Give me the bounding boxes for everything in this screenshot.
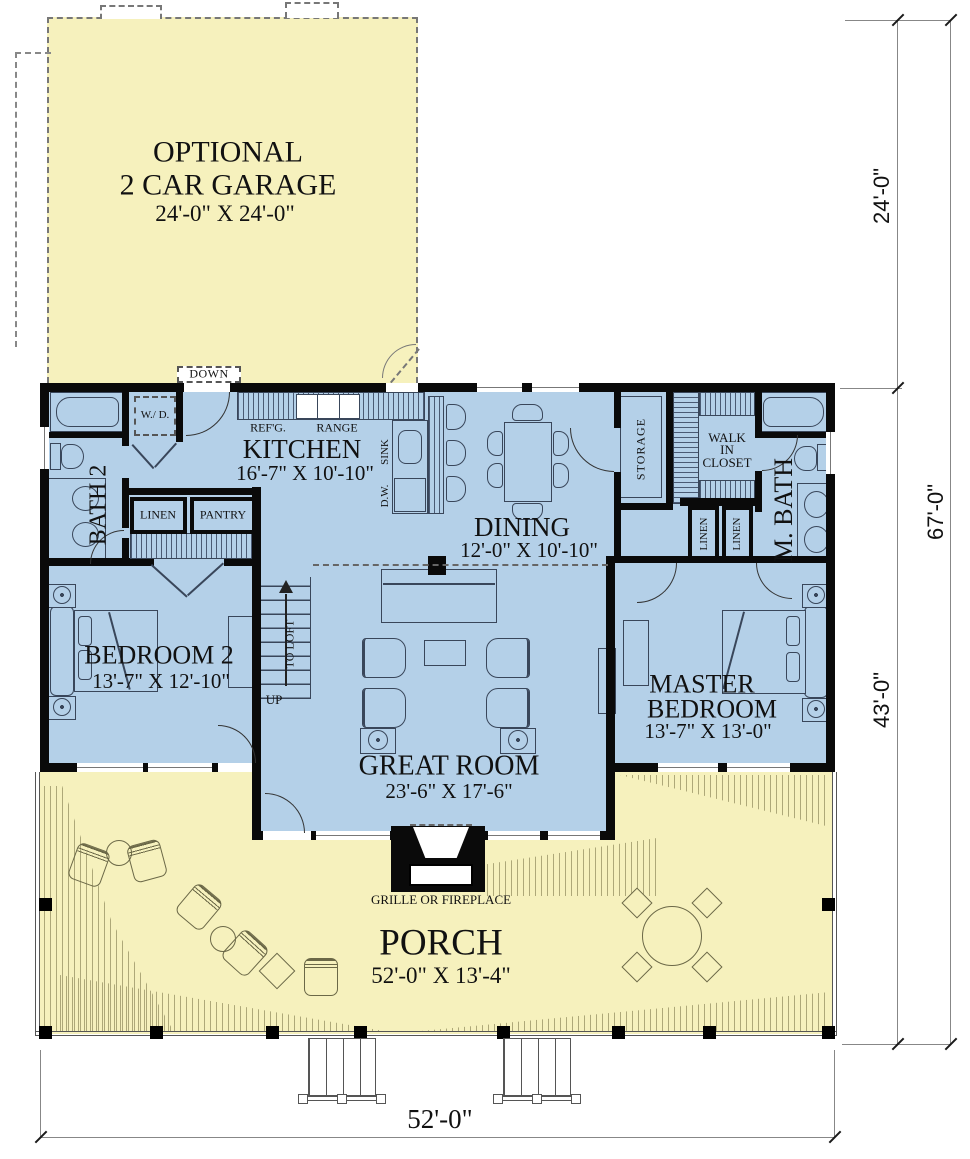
wall-bath2-right-lower <box>122 478 129 528</box>
rocking-chair <box>304 958 338 996</box>
dim-line-inner <box>897 20 898 1045</box>
wall-greatroom-right <box>606 556 615 840</box>
bath2-tub-wall <box>44 432 126 438</box>
mbath-label: M. BATH <box>769 458 799 562</box>
sofa <box>381 569 497 623</box>
kitchen-dims: 16'-7" X 10'-10" <box>236 462 374 484</box>
porch-post <box>266 1026 279 1039</box>
steps-newel <box>298 1094 308 1104</box>
mbath-tub-basin <box>763 397 824 427</box>
wall-top <box>40 383 835 392</box>
wall-bath2-right-upper <box>122 390 129 446</box>
bed2-lamp <box>53 698 71 716</box>
armchair <box>362 688 406 728</box>
master-pillow <box>786 616 800 646</box>
greatroom-window <box>316 831 390 840</box>
dining-table <box>504 422 552 502</box>
stair-arrow-head <box>279 580 293 593</box>
porch-post <box>39 898 52 911</box>
wic-label-line3: CLOSET <box>702 456 751 470</box>
dining-chair <box>487 463 503 488</box>
bedroom2-name: BEDROOM 2 <box>84 641 234 668</box>
steps-newel <box>376 1094 386 1104</box>
garage-title-line2: 2 CAR GARAGE <box>120 169 337 201</box>
wall-storage-right <box>666 390 673 510</box>
grille-label: GRILLE OR FIREPLACE <box>371 893 511 907</box>
dining-chair <box>553 463 569 488</box>
bed2-lamp <box>53 586 71 604</box>
wall-hall-top <box>128 488 259 495</box>
porch-name: PORCH <box>379 925 502 964</box>
steps-newel <box>532 1094 542 1104</box>
bath2-toilet-tank <box>50 443 61 470</box>
sofa-back-line <box>383 583 495 585</box>
bedroom2-dims: 13'-7" X 12'-10" <box>92 670 230 692</box>
dw-label: D.W. <box>379 485 391 508</box>
armchair <box>486 688 530 728</box>
floor-lamp <box>368 730 388 750</box>
garage-door-notch <box>285 2 339 18</box>
range-label: RANGE <box>316 422 357 435</box>
storage-label: STORAGE <box>634 418 649 480</box>
master-lamp <box>807 586 825 604</box>
garage-title-line1: OPTIONAL <box>153 136 303 168</box>
dim-ext-bl <box>40 1050 41 1137</box>
master-lamp <box>807 700 825 718</box>
greatroom-name: GREAT ROOM <box>359 751 540 780</box>
porch-dims: 52'-0" X 13'-4" <box>371 964 511 988</box>
refg-label: REF'G. <box>250 422 286 435</box>
garage-door-notch <box>100 5 162 19</box>
porch-post <box>822 898 835 911</box>
master-headboard <box>804 606 828 698</box>
fireplace-hearth <box>409 864 473 886</box>
wall-closet-bottom-r <box>224 559 258 566</box>
master-dresser <box>623 620 649 686</box>
porch-post <box>150 1026 163 1039</box>
kitchen-dishwasher <box>394 478 426 512</box>
coffee-table <box>424 640 466 666</box>
porch-dining-table <box>642 906 702 966</box>
dim-line-outer <box>950 20 951 1045</box>
wall-dining-storage <box>614 390 621 428</box>
dim-ext-mid <box>840 388 902 389</box>
to-loft-label: TO LOFT <box>283 620 298 669</box>
wic-hangers-left <box>673 392 699 504</box>
bedroom2-window <box>77 763 143 772</box>
porch-steps-right <box>503 1038 571 1096</box>
bath2-tub-basin <box>56 397 119 427</box>
master-window-mullion <box>718 763 727 772</box>
wall-linen-top <box>680 498 762 506</box>
dining-window-mullion <box>522 383 532 392</box>
greatroom-window-mullion <box>540 831 548 840</box>
kitchen-name: KITCHEN <box>243 435 361 463</box>
wall-storage-bottom <box>614 503 673 510</box>
porch-post <box>39 1026 52 1039</box>
wd-label: W./ D. <box>141 410 170 422</box>
floor-lamp <box>508 730 528 750</box>
porch-post <box>822 1026 835 1039</box>
linen-b-label: LINEN <box>731 518 743 551</box>
linen-hall-label: LINEN <box>140 509 176 522</box>
linen-a-label: LINEN <box>698 518 710 551</box>
hall-closet-hangers <box>130 533 254 559</box>
wic-hangers-top <box>699 392 755 416</box>
kitchen-bar <box>428 396 444 514</box>
master-pillow <box>786 652 800 682</box>
dim-right-garage: 24'-0" <box>869 168 895 224</box>
steps-newel <box>571 1094 581 1104</box>
floor-plan: OPTIONAL 2 CAR GARAGE 24'-0" X 24'-0" DO… <box>0 0 970 1159</box>
armchair <box>362 638 406 678</box>
bedroom2-window <box>148 763 212 772</box>
dining-name: DINING <box>474 513 570 541</box>
kitchen-sink <box>398 430 422 464</box>
wall-greatroom-left <box>252 487 261 840</box>
pantry-label: PANTRY <box>200 509 246 522</box>
steps-newel <box>493 1094 503 1104</box>
dim-right-house: 43'-0" <box>869 672 895 728</box>
dining-chair <box>487 431 503 456</box>
greatroom-dims: 23'-6" X 17'-6" <box>385 780 512 802</box>
mbath-window <box>826 432 835 474</box>
wall-wd-right <box>176 390 183 442</box>
bath2-window <box>40 427 49 469</box>
steps-newel <box>337 1094 347 1104</box>
wall-dining-storage2 <box>614 472 621 563</box>
dining-chair <box>512 404 543 421</box>
garage-dims: 24'-0" X 24'-0" <box>155 202 295 226</box>
bath2-label: BATH 2 <box>86 465 113 546</box>
wall-master-top <box>606 556 835 563</box>
porch-post <box>703 1026 716 1039</box>
porch-steps-left <box>308 1038 376 1096</box>
dim-line-bottom <box>40 1137 835 1138</box>
dim-right-total: 67'-0" <box>923 484 949 540</box>
wall-wic-right-upper <box>755 390 762 435</box>
garage-eave-line <box>15 52 51 347</box>
kitchen-garage-door-gap <box>184 383 230 392</box>
loft-opening-dashed-line <box>313 564 608 566</box>
bath2-toilet-bowl <box>61 444 84 469</box>
bed2-headboard <box>50 606 74 696</box>
porch-post <box>612 1026 625 1039</box>
mud-door-gap <box>386 383 418 392</box>
dim-ext-br <box>834 1050 835 1137</box>
down-label: DOWN <box>189 368 228 381</box>
dining-chair <box>553 431 569 456</box>
armchair <box>486 638 530 678</box>
dim-bottom: 52'-0" <box>407 1105 472 1133</box>
master-dims: 13'-7" X 13'-0" <box>644 720 771 742</box>
up-label: UP <box>266 693 283 707</box>
sink-label: SINK <box>379 439 391 465</box>
kitchen-range <box>296 394 360 419</box>
bedroom2-porch-door-gap <box>218 763 252 772</box>
dining-dims: 12'-0" X 10'-10" <box>460 539 598 561</box>
